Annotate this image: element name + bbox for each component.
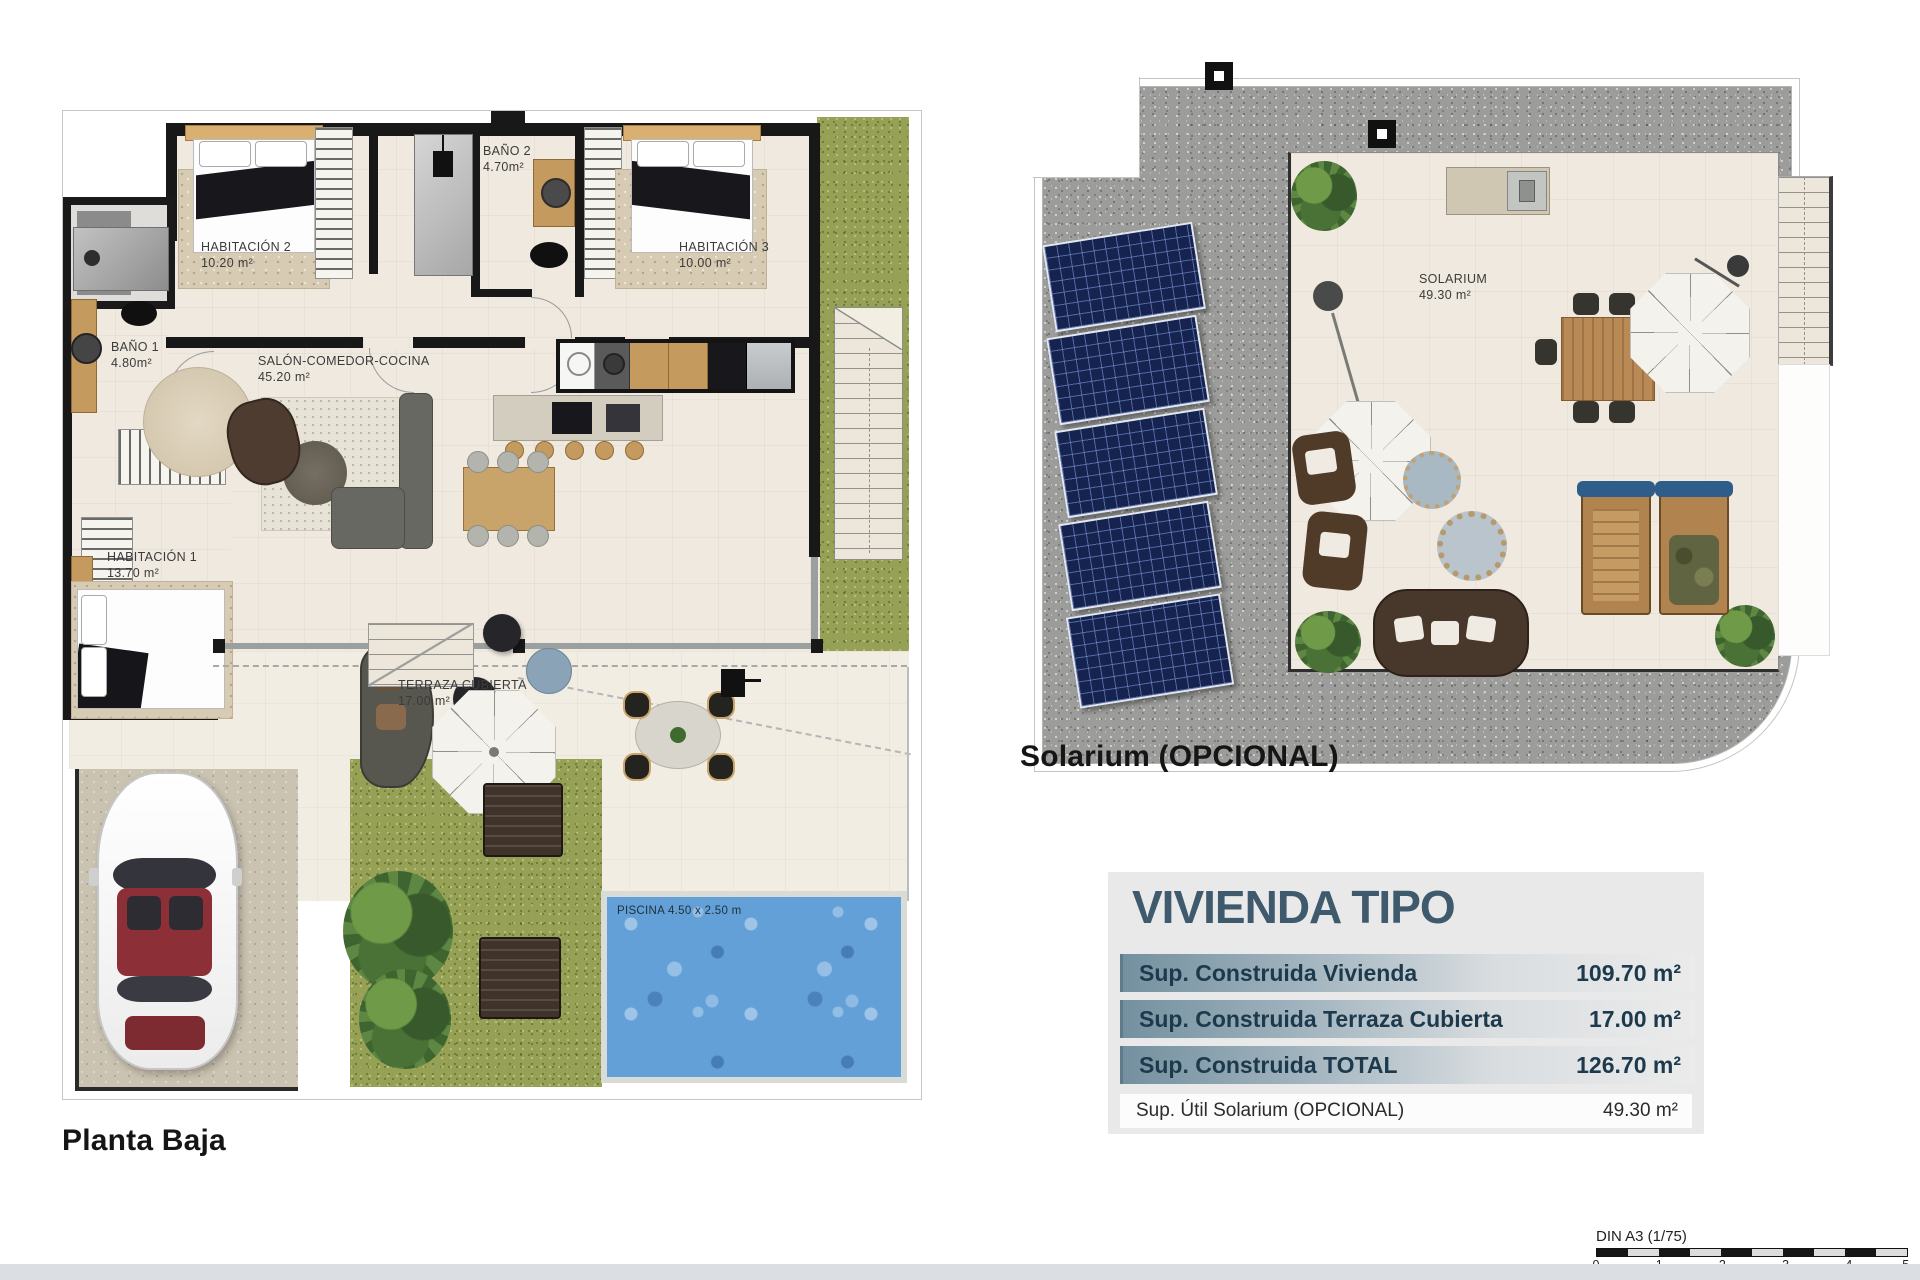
- outdoor-sofa-icon: [1373, 589, 1529, 677]
- wall-bano2-south: [480, 289, 532, 297]
- stairs-diagonal: [835, 308, 902, 350]
- ground-floor-caption: Planta Baja: [62, 1124, 226, 1158]
- plant-icon: [1295, 611, 1361, 673]
- wardrobe-icon: [315, 127, 353, 279]
- chimney-icon: [1368, 120, 1396, 148]
- summary-note-row: Sup. Útil Solarium (OPCIONAL) 49.30 m²: [1120, 1094, 1692, 1128]
- summary-row-value: 109.70 m²: [1576, 960, 1695, 987]
- outdoor-chair-icon: [707, 753, 735, 781]
- chair-icon: [1573, 401, 1599, 423]
- chair-icon: [467, 451, 489, 473]
- room-name: HABITACIÓN 1: [107, 549, 197, 565]
- scale-ruler-icon: [1596, 1248, 1908, 1257]
- outdoor-armchair-icon: [1290, 429, 1357, 506]
- bed-icon: [623, 125, 759, 253]
- scale-label: DIN A3 (1/75): [1596, 1228, 1912, 1245]
- sun-lounger-icon: [1581, 483, 1651, 615]
- bed-icon: [185, 125, 321, 253]
- summary-row-label: Sup. Construida Terraza Cubierta: [1123, 1006, 1503, 1033]
- room-name: BAÑO 1: [111, 339, 159, 355]
- room-area: 10.00 m²: [679, 255, 769, 271]
- solarium-plan: SOLARIUM 49.30 m²: [1020, 58, 1820, 782]
- solarium-caption: Solarium (OPCIONAL): [1020, 740, 1339, 774]
- sofa-chaise-icon: [331, 487, 405, 549]
- room-name: BAÑO 2: [483, 143, 531, 159]
- outdoor-kitchen-icon: [1446, 167, 1550, 215]
- room-name: SALÓN-COMEDOR-COCINA: [258, 353, 430, 369]
- bed-icon: [71, 581, 231, 717]
- sun-lounger-icon: [483, 783, 563, 857]
- summary-row-value: 126.70 m²: [1576, 1052, 1695, 1079]
- cabinet-icon: [669, 343, 708, 389]
- summary-row: Sup. Construida Vivienda 109.70 m²: [1120, 954, 1695, 992]
- umbrella-pole-icon: [1727, 255, 1749, 277]
- counter-steel: [747, 343, 791, 389]
- summary-row-label: Sup. Construida Vivienda: [1123, 960, 1417, 987]
- sun-lounger-icon: [1659, 483, 1729, 615]
- room-label-bano2: BAÑO 2 4.70m²: [483, 143, 531, 176]
- chair-icon: [527, 525, 549, 547]
- window-right: [811, 557, 818, 645]
- bbq-icon: [721, 669, 745, 697]
- toilet-icon: [121, 301, 157, 326]
- umbrella-icon: [1630, 273, 1750, 393]
- room-area: 13.70 m²: [107, 565, 197, 581]
- cabinet-icon: [630, 343, 669, 389]
- solarium-floor: SOLARIUM 49.30 m²: [1288, 152, 1779, 672]
- chimney-icon: [1205, 62, 1233, 90]
- plant-icon: [1291, 161, 1357, 231]
- wall-top-bump: [491, 111, 525, 125]
- bar-stool-icon: [625, 441, 644, 460]
- chair-icon: [1573, 293, 1599, 315]
- room-area: 4.80m²: [111, 355, 159, 371]
- car-icon: [97, 772, 234, 1066]
- exterior-stairs-icon: [834, 307, 903, 560]
- wall-bano2-east: [575, 134, 584, 297]
- door-post: [811, 639, 823, 653]
- round-rug-icon: [1437, 511, 1507, 581]
- summary-row-value: 17.00 m²: [1589, 1006, 1695, 1033]
- kitchen-island: [493, 395, 663, 441]
- door-gap: [363, 337, 413, 348]
- room-label-terraza: TERRAZA CUBIERTA 17.00 m²: [398, 677, 527, 710]
- scale-bar: DIN A3 (1/75) 0 1 2 3 4 5: [1596, 1228, 1912, 1268]
- solarium-stairs-icon: [1778, 176, 1833, 366]
- toilet-icon: [530, 242, 568, 268]
- summary-row-value: 49.30 m²: [1603, 1100, 1692, 1122]
- fence-line: [907, 667, 909, 901]
- room-name: HABITACIÓN 2: [201, 239, 291, 255]
- outdoor-chair-icon: [623, 691, 651, 719]
- umbrella-pole-icon: [1313, 281, 1343, 311]
- pool-label: PISCINA 4.50 x 2.50 m: [617, 905, 742, 917]
- sink-icon: [71, 333, 102, 364]
- palm-tree-icon: [359, 969, 451, 1069]
- landing-outline: [1778, 364, 1830, 656]
- washer-icon: [560, 343, 595, 389]
- pool: PISCINA 4.50 x 2.50 m: [601, 891, 907, 1083]
- chair-icon: [497, 451, 519, 473]
- summary-row: Sup. Construida Terraza Cubierta 17.00 m…: [1120, 1000, 1695, 1038]
- door-post: [213, 639, 225, 653]
- bar-stool-icon: [595, 441, 614, 460]
- room-label-habitacion3: HABITACIÓN 3 10.00 m²: [679, 239, 769, 272]
- room-label-solarium: SOLARIUM 49.30 m²: [1419, 271, 1487, 304]
- room-area: 45.20 m²: [258, 369, 430, 385]
- roof-notch: [1033, 77, 1140, 178]
- room-label-bano1: BAÑO 1 4.80m²: [111, 339, 159, 372]
- summary-title: VIVIENDA TIPO: [1132, 880, 1455, 934]
- outdoor-armchair-icon: [1301, 510, 1369, 592]
- ground-floor-plan: PISCINA 4.50 x 2.50 m: [62, 110, 922, 1100]
- room-area: 49.30 m²: [1419, 287, 1487, 303]
- sun-lounger-icon: [479, 937, 561, 1019]
- fridge-icon: [708, 343, 747, 389]
- chair-icon: [527, 451, 549, 473]
- chair-icon: [467, 525, 489, 547]
- room-label-salon: SALÓN-COMEDOR-COCINA 45.20 m²: [258, 353, 430, 386]
- room-name: HABITACIÓN 3: [679, 239, 769, 255]
- summary-row-label: Sup. Construida TOTAL: [1123, 1052, 1398, 1079]
- closet-icon: [414, 134, 473, 276]
- bottom-strip: [0, 1264, 1920, 1280]
- room-label-habitacion2: HABITACIÓN 2 10.20 m²: [201, 239, 291, 272]
- sink-cabinet-icon: [533, 159, 575, 227]
- wall-hab2-east: [369, 134, 378, 274]
- floor-plan-page: { "plan_ground": { "caption": "Planta Ba…: [0, 0, 1920, 1280]
- room-label-habitacion1: HABITACIÓN 1 13.70 m²: [107, 549, 197, 582]
- round-rug-icon: [1403, 451, 1461, 509]
- bar-stool-icon: [565, 441, 584, 460]
- shower-icon: [73, 227, 169, 291]
- room-name: TERRAZA CUBIERTA: [398, 677, 527, 693]
- pouf-icon: [526, 648, 572, 694]
- chair-icon: [497, 525, 519, 547]
- outdoor-chair-icon: [623, 753, 651, 781]
- summary-panel: VIVIENDA TIPO Sup. Construida Vivienda 1…: [1108, 872, 1704, 1134]
- wall-right: [809, 123, 820, 557]
- pouf-icon: [483, 614, 521, 652]
- oven-icon: [595, 343, 630, 389]
- room-name: SOLARIUM: [1419, 271, 1487, 287]
- stairs-guide-line: [869, 348, 870, 553]
- summary-row: Sup. Construida TOTAL 126.70 m²: [1120, 1046, 1695, 1084]
- kitchen-counter: [556, 339, 795, 393]
- room-area: 10.20 m²: [201, 255, 291, 271]
- room-area: 4.70m²: [483, 159, 531, 175]
- chair-icon: [1535, 339, 1557, 365]
- room-area: 17.00 m²: [398, 693, 527, 709]
- summary-row-label: Sup. Útil Solarium (OPCIONAL): [1120, 1100, 1404, 1122]
- chair-icon: [1609, 401, 1635, 423]
- dining-table-icon: [463, 467, 555, 531]
